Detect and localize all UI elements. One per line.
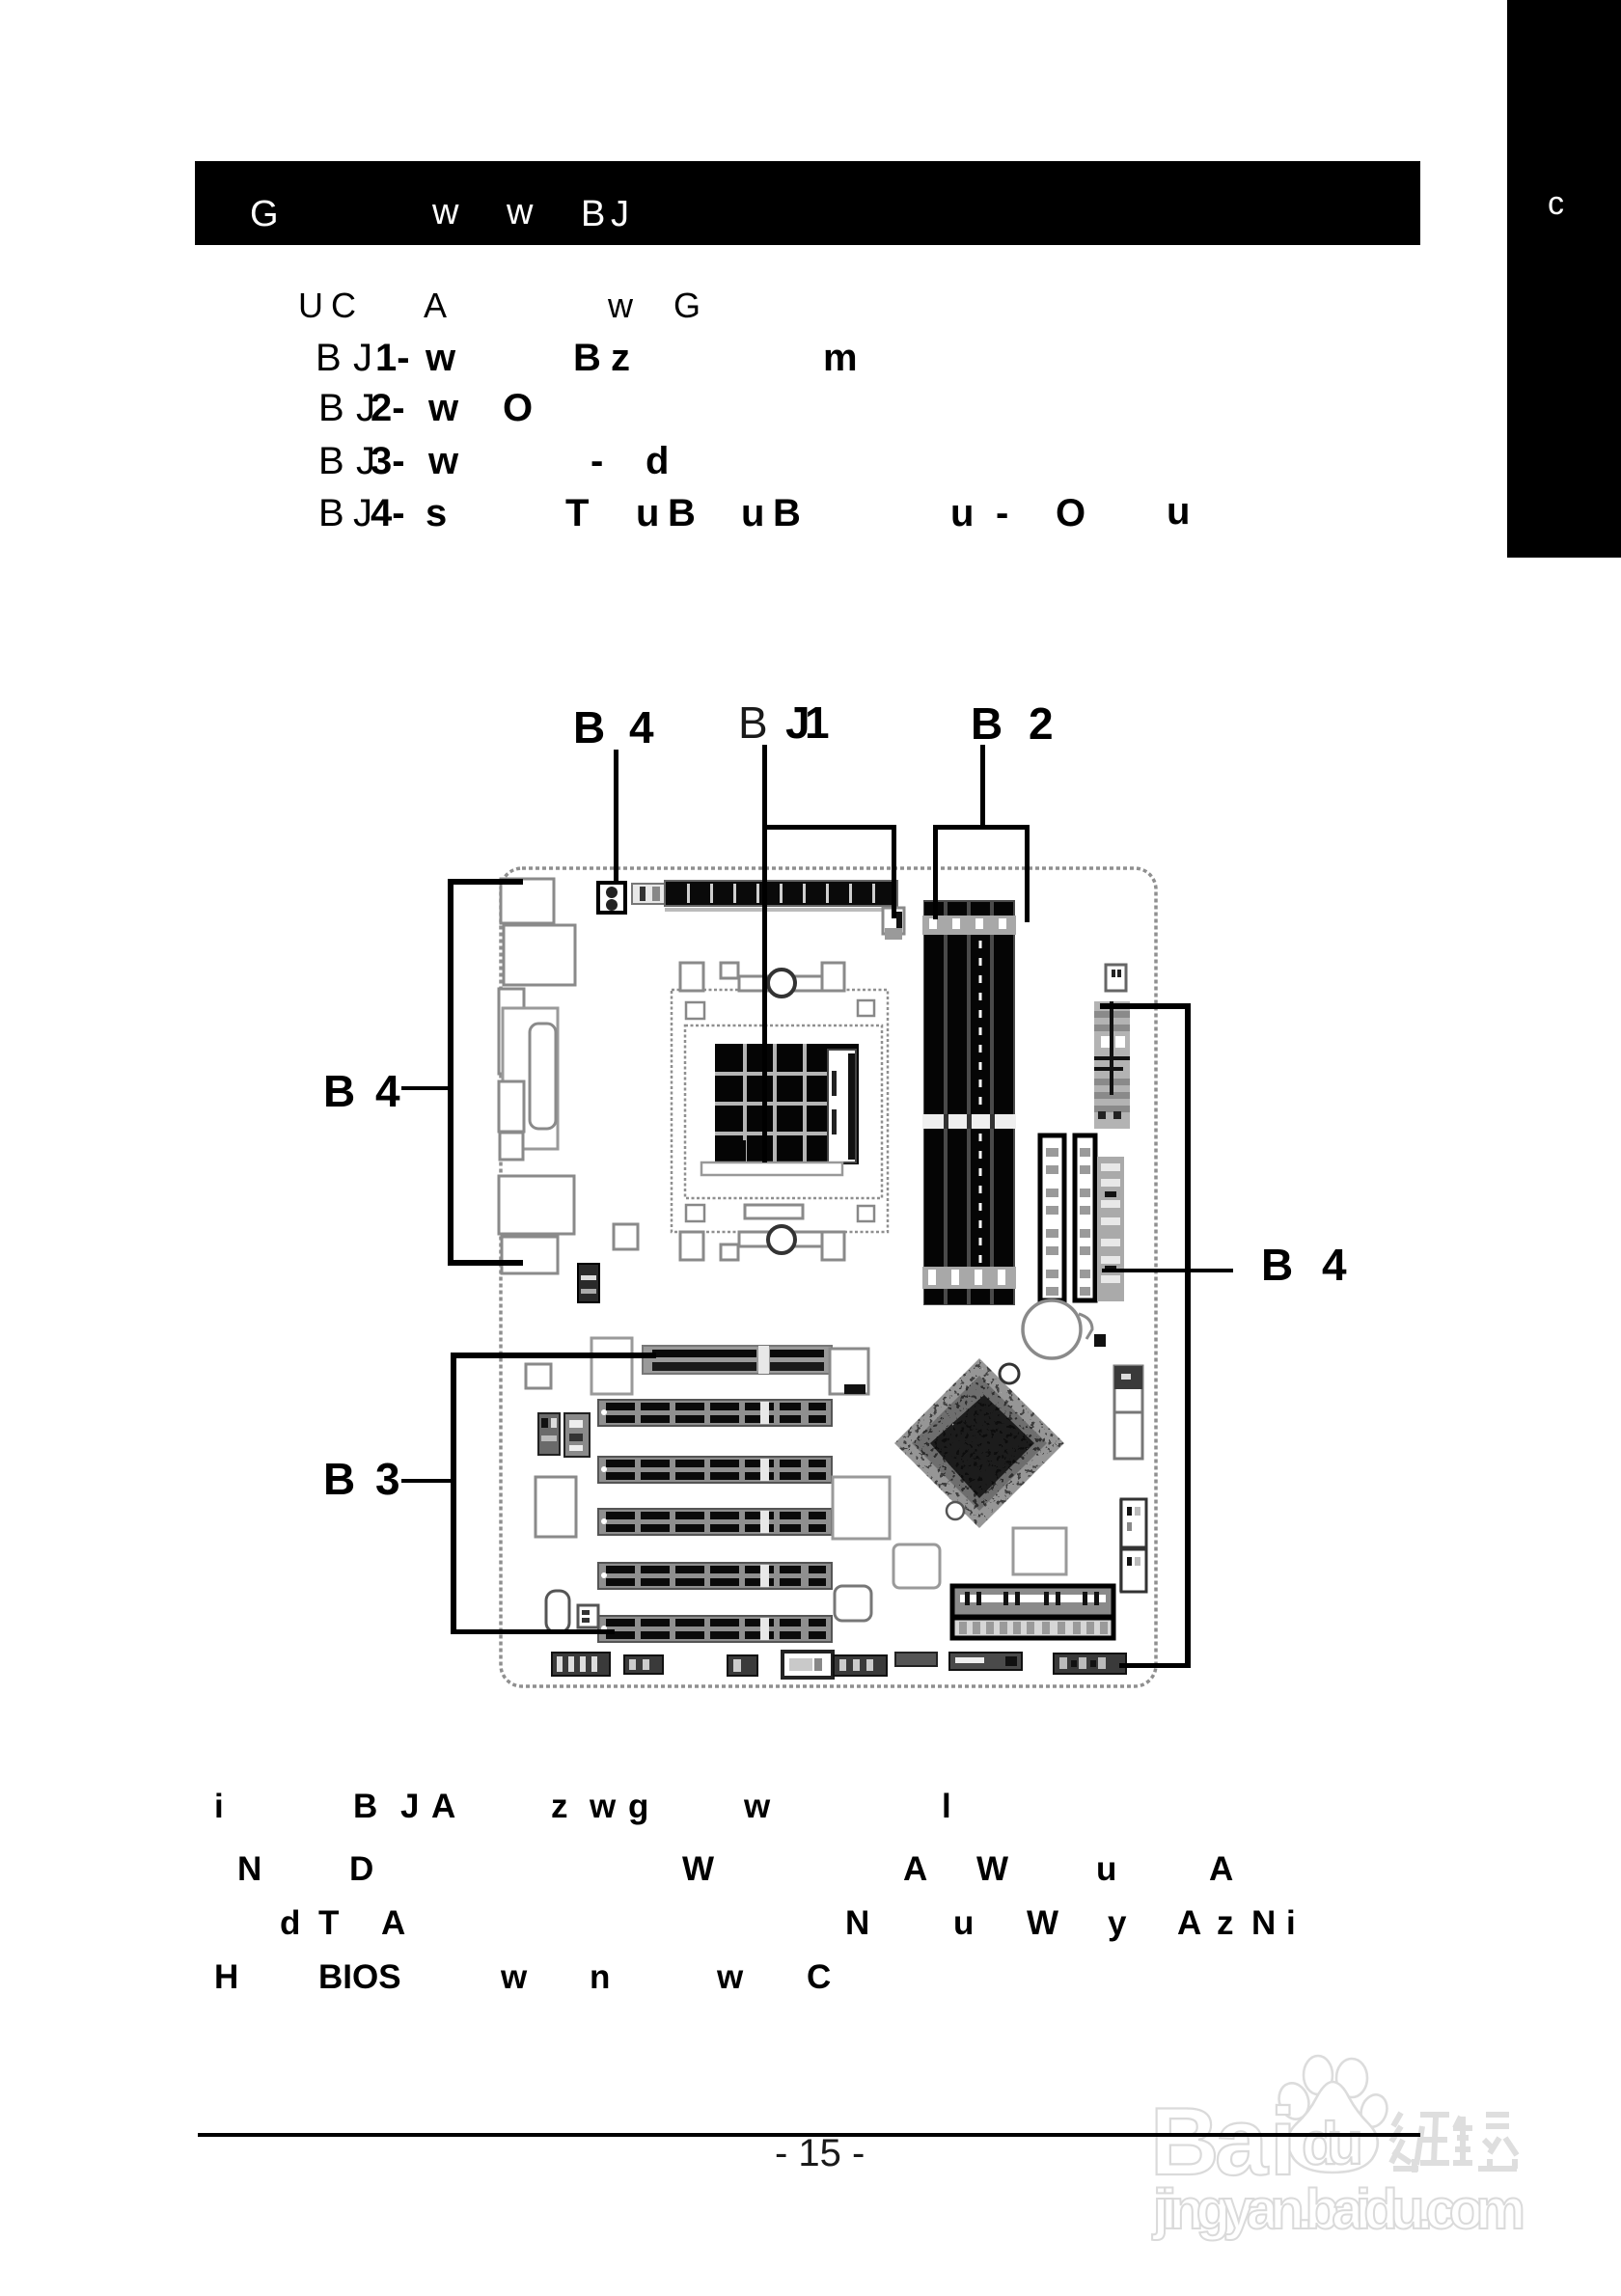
svg-text:w: w	[607, 286, 634, 325]
svg-text:N: N	[845, 1904, 869, 1942]
svg-text:G: G	[250, 194, 279, 234]
svg-text:c: c	[1548, 185, 1564, 222]
svg-text:W: W	[682, 1850, 714, 1888]
svg-text:d: d	[646, 440, 669, 482]
svg-text:w: w	[427, 387, 459, 429]
svg-text:N: N	[237, 1850, 261, 1888]
svg-text:B: B	[581, 194, 605, 234]
svg-text:D: D	[349, 1850, 373, 1888]
svg-text:z: z	[611, 337, 630, 379]
svg-text:4: 4	[375, 1066, 400, 1116]
svg-text:u: u	[636, 492, 659, 534]
svg-text:J: J	[353, 492, 372, 534]
svg-text:i: i	[1286, 1904, 1296, 1942]
svg-text:u: u	[1096, 1850, 1116, 1888]
svg-text:3: 3	[375, 1454, 400, 1504]
svg-text:B: B	[316, 337, 342, 379]
svg-text:U: U	[298, 286, 323, 325]
svg-text:l: l	[942, 1788, 951, 1825]
svg-text:w: w	[589, 1788, 617, 1825]
svg-text:O: O	[1056, 492, 1085, 534]
svg-text:A: A	[431, 1788, 455, 1825]
svg-text:BIOS: BIOS	[318, 1958, 401, 1996]
svg-text:w: w	[500, 1958, 528, 1996]
svg-text:du: du	[1302, 2111, 1363, 2177]
svg-text:2: 2	[1029, 698, 1054, 749]
svg-text:C: C	[807, 1958, 831, 1996]
svg-text:C: C	[331, 286, 356, 325]
svg-text:T: T	[565, 492, 589, 534]
svg-text:W: W	[1027, 1904, 1058, 1942]
svg-text:u: u	[1167, 490, 1190, 533]
svg-text:1-: 1-	[375, 337, 410, 379]
svg-text:- 15 -: - 15 -	[775, 2132, 865, 2174]
svg-text:-: -	[591, 440, 603, 482]
svg-text:A: A	[381, 1904, 405, 1942]
svg-text:J: J	[353, 337, 372, 379]
svg-text:w: w	[506, 192, 534, 232]
svg-text:H: H	[214, 1958, 238, 1996]
svg-text:d: d	[280, 1904, 300, 1942]
svg-text:z: z	[1217, 1904, 1234, 1942]
svg-text:J: J	[400, 1788, 419, 1825]
svg-text:A: A	[1209, 1850, 1233, 1888]
svg-text:jingyan.baidu.com: jingyan.baidu.com	[1152, 2178, 1525, 2241]
svg-text:B: B	[318, 492, 344, 534]
svg-text:w: w	[427, 440, 459, 482]
svg-text:u: u	[953, 1904, 974, 1942]
svg-text:B: B	[971, 698, 1003, 749]
svg-text:O: O	[503, 387, 533, 429]
svg-text:B: B	[318, 440, 344, 482]
svg-text:u: u	[741, 492, 764, 534]
svg-text:-: -	[996, 492, 1008, 534]
svg-text:z: z	[551, 1788, 568, 1825]
svg-text:W: W	[976, 1850, 1008, 1888]
svg-text:T: T	[318, 1904, 339, 1942]
svg-text:A: A	[903, 1850, 927, 1888]
svg-text:B: B	[353, 1788, 377, 1825]
svg-text:B: B	[773, 492, 801, 534]
svg-text:w: w	[716, 1958, 744, 1996]
svg-text:n: n	[590, 1958, 610, 1996]
svg-text:2-: 2-	[371, 387, 405, 429]
svg-text:A: A	[1177, 1904, 1201, 1942]
svg-text:N: N	[1251, 1904, 1276, 1942]
svg-text:s: s	[426, 492, 447, 534]
svg-text:B: B	[573, 702, 605, 752]
svg-text:m: m	[823, 337, 858, 379]
svg-text:w: w	[425, 337, 456, 379]
svg-text:3-: 3-	[371, 440, 405, 482]
svg-text:i: i	[214, 1788, 224, 1825]
svg-text:B: B	[573, 337, 601, 379]
svg-text:4: 4	[629, 702, 654, 752]
svg-text:4: 4	[1322, 1240, 1347, 1290]
svg-text:g: g	[628, 1788, 648, 1825]
svg-text:4-: 4-	[371, 492, 405, 534]
svg-text:A: A	[424, 286, 447, 325]
svg-text:u: u	[950, 492, 974, 534]
svg-text:B: B	[323, 1454, 355, 1504]
svg-text:J: J	[611, 194, 629, 234]
svg-text:B: B	[668, 492, 696, 534]
svg-text:B: B	[738, 697, 768, 748]
svg-text:B: B	[323, 1066, 355, 1116]
svg-text:w: w	[743, 1788, 771, 1825]
svg-text:y: y	[1108, 1904, 1127, 1942]
svg-text:w: w	[431, 192, 459, 232]
svg-text:G: G	[673, 286, 701, 325]
svg-text:1: 1	[805, 697, 830, 748]
svg-text:B: B	[318, 387, 344, 429]
svg-text:B: B	[1261, 1240, 1293, 1290]
